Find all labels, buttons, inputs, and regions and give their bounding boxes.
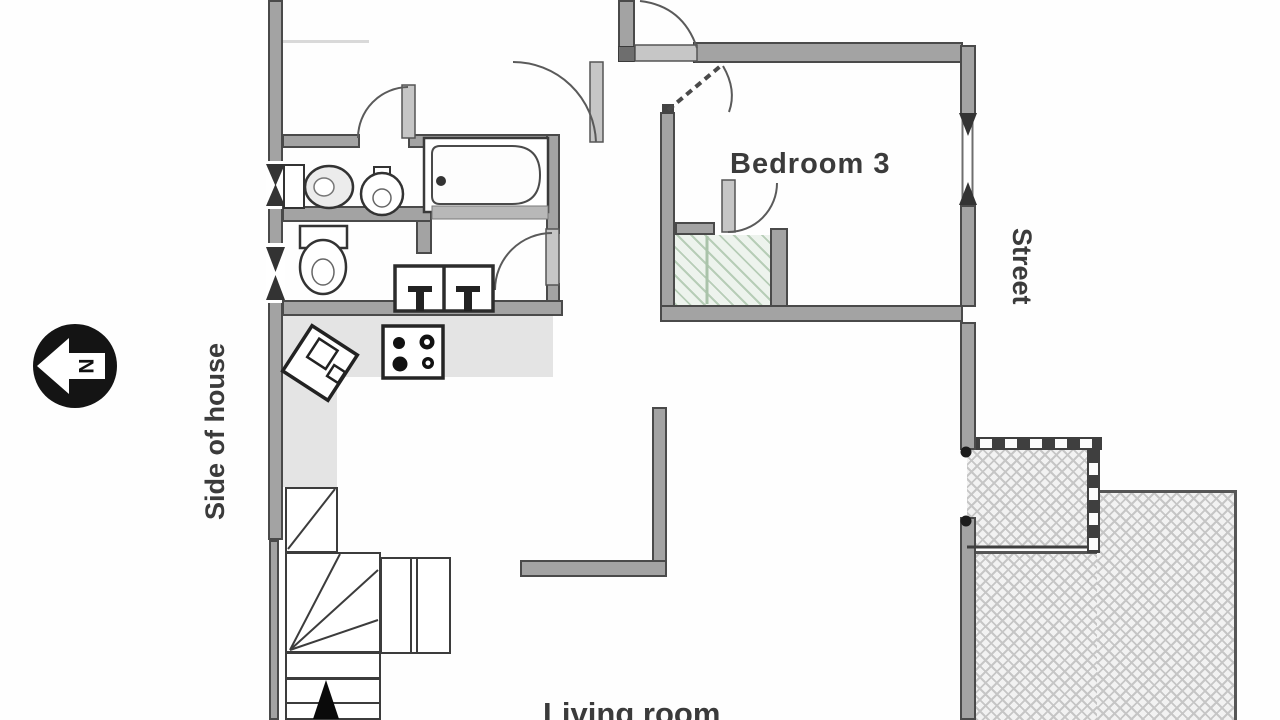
bedroom3-label: Bedroom 3 <box>730 148 890 181</box>
door-leaf-landing <box>590 62 603 142</box>
living-room-label: Living room <box>543 696 720 720</box>
stove-icon <box>383 326 443 378</box>
compass-north-letter: N <box>76 358 99 373</box>
toilet-tank-icon <box>284 165 304 208</box>
door-leaf-wc <box>546 229 559 285</box>
toilet-bowl-inner <box>314 178 334 196</box>
door-arc-landing <box>513 62 596 142</box>
door-leaf-hall-top <box>635 45 697 61</box>
side-of-house-label: Side of house <box>200 343 231 520</box>
stove-burner-inner <box>424 339 430 345</box>
door-leaf-bedroom3 <box>668 64 723 110</box>
round-sink-drain <box>373 189 391 207</box>
patio-door-hinge-top <box>961 447 972 458</box>
sink-faucet-icon <box>464 291 472 311</box>
street-label: Street <box>1006 228 1037 305</box>
plan-overlay: N <box>0 0 1280 720</box>
door-arc-wc <box>495 233 552 290</box>
stove-burner <box>393 337 405 349</box>
sink-faucet-icon <box>416 291 424 311</box>
door-arc-bedroom3 <box>723 66 732 112</box>
door-leaf-closet <box>722 180 735 232</box>
door-arc-bathroom <box>358 87 408 138</box>
wc-toilet-bowl-inner <box>312 259 334 285</box>
window-marker-icon <box>266 275 285 300</box>
window-marker-icon <box>266 184 285 206</box>
sink-faucet-bar <box>408 286 432 292</box>
window-line <box>962 113 964 205</box>
stove-burner-inner <box>426 361 431 366</box>
floor-plan: N Bedroom 3 Street Side of house Living … <box>0 0 1280 720</box>
compass-icon: N <box>33 324 117 408</box>
stove-burner <box>393 357 408 372</box>
window-marker-icon <box>266 247 285 272</box>
stair-tread-line <box>288 489 335 549</box>
tilted-appliance-icon <box>283 326 358 401</box>
bathtub-drain <box>436 176 446 186</box>
bathtub-ledge <box>432 206 548 219</box>
door-arc-hall-top <box>640 1 697 48</box>
bathtub-basin <box>432 146 540 204</box>
stair-direction-arrow-icon <box>313 680 339 719</box>
window-marker-icon <box>266 164 285 186</box>
door-leaf-bathroom <box>402 85 415 138</box>
stair-winder-line <box>290 570 378 650</box>
patio-door-hinge-bottom <box>961 516 972 527</box>
window-line <box>972 113 974 205</box>
sink-faucet-bar <box>456 286 480 292</box>
